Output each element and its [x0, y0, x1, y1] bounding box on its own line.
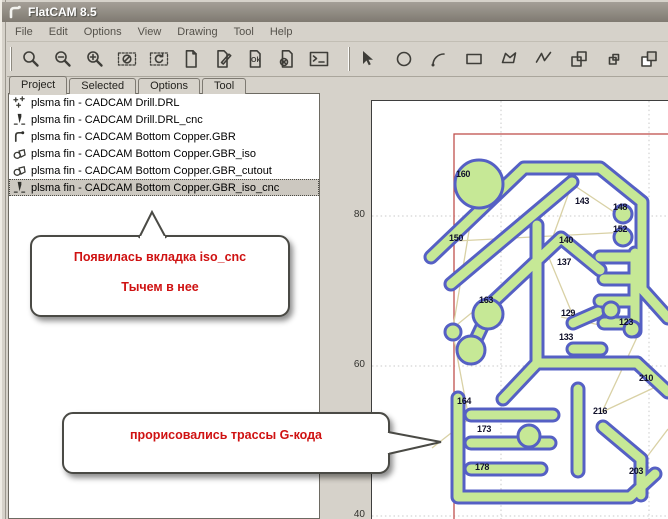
tree-row-label: plsma fin - CADCAM Drill.DRL — [31, 97, 180, 109]
tree-row-label: plsma fin - CADCAM Drill.DRL_cnc — [31, 114, 203, 126]
app-icon — [7, 4, 23, 20]
edit-object-button[interactable] — [210, 46, 236, 72]
shell-button[interactable] — [306, 46, 332, 72]
union-icon — [569, 49, 589, 69]
pointer-icon — [359, 49, 379, 69]
trace-label: 133 — [559, 333, 573, 342]
trace-label: 150 — [449, 234, 463, 243]
callout-tail-right — [386, 431, 443, 455]
tree-row-drill[interactable]: plsma fin - CADCAM Drill.DRL — [9, 94, 319, 111]
polygon-icon — [499, 49, 519, 69]
new-project-button[interactable] — [178, 46, 204, 72]
menu-view[interactable]: View — [130, 25, 170, 39]
trace-label: 178 — [475, 463, 489, 472]
tab-tool[interactable]: Tool — [202, 78, 246, 94]
trace-label: 129 — [561, 309, 575, 318]
draw-arc-button[interactable] — [426, 46, 452, 72]
callout-traces-hint: прорисовались трассы G-кода — [62, 412, 390, 474]
gerber-icon — [13, 130, 26, 143]
shape-subtract-button[interactable] — [636, 46, 662, 72]
callout-tab-hint: Появилась вкладка iso_cnc Тычем в нее — [30, 235, 290, 317]
replot-button[interactable] — [146, 46, 172, 72]
trace-label: 148 — [613, 203, 627, 212]
svg-text:Ok: Ok — [251, 57, 260, 64]
shape-intersection-button[interactable] — [601, 46, 627, 72]
panel-tabs: Project Selected Options Tool — [9, 77, 322, 94]
pointer-button[interactable] — [356, 46, 382, 72]
geometry-icon — [13, 164, 26, 177]
intersection-icon — [604, 49, 624, 69]
new-project-icon — [181, 49, 201, 69]
menu-edit[interactable]: Edit — [41, 25, 76, 39]
callout-line: Тычем в нее — [32, 280, 288, 294]
axis-tick: 40 — [345, 509, 365, 519]
tree-row-label: plsma fin - CADCAM Bottom Copper.GBR — [31, 131, 236, 143]
axis-tick: 80 — [345, 209, 365, 220]
trace-label: 163 — [479, 296, 493, 305]
trace-label: 164 — [457, 397, 471, 406]
subtract-icon — [639, 49, 659, 69]
tree-row-drill-cnc[interactable]: plsma fin - CADCAM Drill.DRL_cnc — [9, 111, 319, 128]
menu-file[interactable]: File — [7, 25, 41, 39]
toolbar-grip[interactable] — [348, 47, 350, 71]
clear-plot-icon — [117, 49, 137, 69]
zoom-out-icon — [53, 49, 73, 69]
trace-label: 210 — [639, 374, 653, 383]
zoom-in-icon — [85, 49, 105, 69]
menu-options[interactable]: Options — [76, 25, 130, 39]
zoom-fit-button[interactable] — [18, 46, 44, 72]
trace-label: 160 — [456, 170, 470, 179]
titlebar: FlatCAM 8.5 — [2, 2, 668, 22]
generate-ok-button[interactable]: Ok — [242, 46, 268, 72]
circle-icon — [394, 49, 414, 69]
tree-row-label: plsma fin - CADCAM Bottom Copper.GBR_cut… — [31, 165, 272, 177]
flatcam-window: FlatCAM 8.5 File Edit Options View Drawi… — [0, 0, 668, 519]
rectangle-icon — [464, 49, 484, 69]
tab-selected[interactable]: Selected — [69, 78, 136, 94]
callout-line: Появилась вкладка iso_cnc — [32, 250, 288, 264]
draw-polygon-button[interactable] — [496, 46, 522, 72]
shape-union-button[interactable] — [566, 46, 592, 72]
edit-object-icon — [213, 49, 233, 69]
callout-line: прорисовались трассы G-кода — [64, 428, 388, 442]
callout-tail-up — [138, 210, 168, 239]
clear-plot-button[interactable] — [114, 46, 140, 72]
trace-label: 137 — [557, 258, 571, 267]
toolbar: Ok — [7, 42, 668, 77]
tree-row-cutout[interactable]: plsma fin - CADCAM Bottom Copper.GBR_cut… — [9, 162, 319, 179]
zoom-in-button[interactable] — [82, 46, 108, 72]
draw-circle-button[interactable] — [391, 46, 417, 72]
trace-label: 152 — [613, 225, 627, 234]
trace-label: 123 — [619, 318, 633, 327]
draw-toolbar-group — [356, 46, 668, 72]
delete-object-icon — [277, 49, 297, 69]
tree-row-gerber[interactable]: plsma fin - CADCAM Bottom Copper.GBR — [9, 128, 319, 145]
window-frame — [0, 0, 7, 519]
tree-row-iso-cnc[interactable]: plsma fin - CADCAM Bottom Copper.GBR_iso… — [9, 179, 319, 196]
trace-label: 143 — [575, 197, 589, 206]
polyline-icon — [534, 49, 554, 69]
cncjob-icon — [13, 181, 26, 194]
menu-help[interactable]: Help — [262, 25, 301, 39]
plot-canvas[interactable]: 1601431481521501401371631291231332101642… — [371, 100, 668, 519]
window-title: FlatCAM 8.5 — [28, 5, 97, 19]
arc-icon — [429, 49, 449, 69]
toolbar-grip[interactable] — [10, 47, 12, 71]
geometry-icon — [13, 147, 26, 160]
menu-tool[interactable]: Tool — [226, 25, 262, 39]
pcb-plot — [372, 101, 668, 519]
delete-object-button[interactable] — [274, 46, 300, 72]
zoom-fit-icon — [21, 49, 41, 69]
tab-project[interactable]: Project — [9, 76, 67, 94]
tree-row-label: plsma fin - CADCAM Bottom Copper.GBR_iso… — [31, 182, 279, 194]
trace-label: 140 — [559, 236, 573, 245]
draw-polyline-button[interactable] — [531, 46, 557, 72]
shell-icon — [309, 49, 329, 69]
generate-ok-icon: Ok — [245, 49, 265, 69]
draw-rectangle-button[interactable] — [461, 46, 487, 72]
axis-tick: 60 — [345, 359, 365, 370]
tree-row-iso[interactable]: plsma fin - CADCAM Bottom Copper.GBR_iso — [9, 145, 319, 162]
tab-options[interactable]: Options — [138, 78, 200, 94]
replot-icon — [149, 49, 169, 69]
trace-label: 203 — [629, 467, 643, 476]
excellon-icon — [13, 96, 26, 109]
trace-label: 216 — [593, 407, 607, 416]
menubar: File Edit Options View Drawing Tool Help — [7, 23, 668, 42]
tree-row-label: plsma fin - CADCAM Bottom Copper.GBR_iso — [31, 148, 256, 160]
cncjob-icon — [13, 113, 26, 126]
zoom-out-button[interactable] — [50, 46, 76, 72]
trace-label: 173 — [477, 425, 491, 434]
menu-drawing[interactable]: Drawing — [169, 25, 225, 39]
